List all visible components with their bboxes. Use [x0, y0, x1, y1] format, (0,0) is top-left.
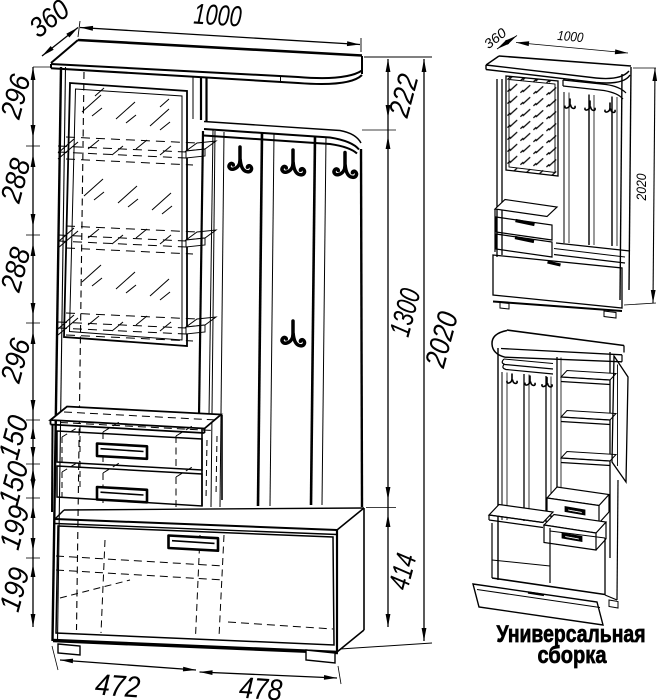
svg-text:478: 478 — [238, 672, 283, 700]
svg-text:1000: 1000 — [193, 0, 243, 33]
svg-text:сборка: сборка — [538, 642, 608, 669]
svg-text:472: 472 — [94, 668, 141, 700]
svg-text:2020: 2020 — [634, 173, 649, 201]
svg-text:1000: 1000 — [557, 28, 585, 45]
